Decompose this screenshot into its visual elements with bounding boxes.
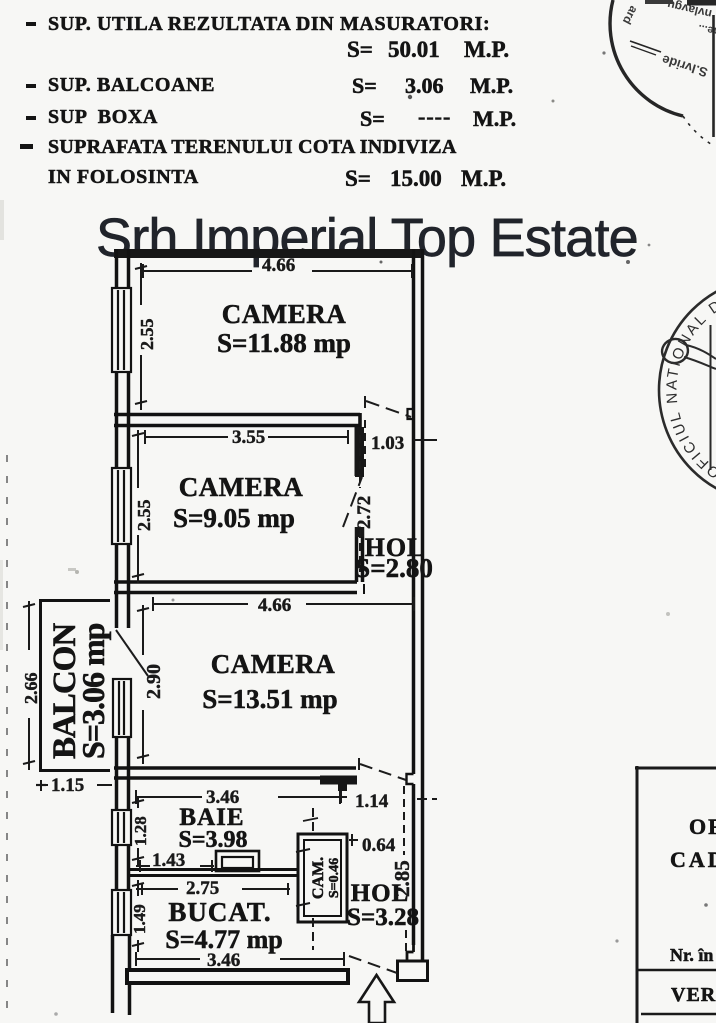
- svg-text:S=3.06 mp: S=3.06 mp: [75, 623, 111, 759]
- svg-text:M.P.: M.P.: [470, 73, 513, 98]
- svg-text:SUP. UTILA REZULTATA DIN MASUR: SUP. UTILA REZULTATA DIN MASURATORI:: [48, 13, 490, 35]
- svg-text:SUP BOXA: SUP BOXA: [48, 106, 158, 128]
- svg-text:SUP. BALCOANE: SUP. BALCOANE: [48, 74, 215, 96]
- svg-text:S=11.88 mp: S=11.88 mp: [217, 328, 351, 358]
- svg-text:S=: S=: [345, 166, 371, 191]
- svg-text:2.90: 2.90: [143, 664, 165, 699]
- svg-text:CAMERA: CAMERA: [211, 649, 336, 679]
- svg-text:S=0.46: S=0.46: [327, 858, 342, 898]
- svg-text:OF: OF: [689, 814, 716, 839]
- svg-text:2.55: 2.55: [134, 500, 154, 532]
- svg-text:S=9.05 mp: S=9.05 mp: [173, 503, 295, 533]
- svg-text:S=: S=: [360, 106, 385, 131]
- svg-text:CAM.: CAM.: [310, 857, 327, 899]
- svg-text:S=3.98: S=3.98: [178, 827, 247, 853]
- svg-text:2.72: 2.72: [354, 496, 375, 529]
- svg-text:S=: S=: [347, 37, 373, 62]
- svg-text:M.P.: M.P.: [464, 37, 509, 62]
- svg-text:CAD: CAD: [670, 847, 716, 872]
- svg-text:S=4.77 mp: S=4.77 mp: [165, 925, 282, 954]
- svg-text:50.01: 50.01: [388, 37, 440, 62]
- svg-text:4.66: 4.66: [262, 255, 295, 276]
- svg-text:S=13.51 mp: S=13.51 mp: [202, 684, 337, 714]
- svg-text:BUCAT.: BUCAT.: [168, 897, 271, 927]
- svg-text:CAMERA: CAMERA: [179, 472, 304, 502]
- svg-text:1.14: 1.14: [355, 791, 389, 812]
- svg-text:1.28: 1.28: [131, 816, 150, 846]
- svg-text:1.03: 1.03: [371, 433, 404, 454]
- svg-text:2.55: 2.55: [137, 319, 157, 351]
- svg-text:----: ----: [418, 104, 451, 129]
- svg-text:15.00: 15.00: [390, 166, 442, 191]
- svg-text:SUPRAFATA TERENULUI COTA INDIV: SUPRAFATA TERENULUI COTA INDIVIZA: [48, 136, 457, 158]
- svg-text:S=3.28: S=3.28: [347, 904, 419, 931]
- svg-text:VER: VER: [671, 984, 716, 1006]
- svg-text:2.66: 2.66: [21, 673, 41, 705]
- svg-text:Srh Imperial Top Estate: Srh Imperial Top Estate: [96, 208, 638, 268]
- svg-text:3.55: 3.55: [232, 427, 265, 448]
- svg-text:S=: S=: [352, 73, 377, 98]
- svg-text:HOL: HOL: [351, 880, 410, 907]
- svg-text:Nr. în: Nr. în: [670, 945, 713, 965]
- svg-text:CAMERA: CAMERA: [222, 299, 347, 329]
- svg-text:IN FOLOSINTA: IN FOLOSINTA: [48, 166, 199, 188]
- svg-text:1.15: 1.15: [51, 775, 84, 796]
- svg-text:M.P.: M.P.: [461, 166, 506, 191]
- svg-text:4.66: 4.66: [258, 595, 291, 616]
- svg-text:1.43: 1.43: [152, 850, 185, 871]
- svg-text:2.75: 2.75: [186, 878, 219, 899]
- svg-text:3.06: 3.06: [405, 73, 444, 98]
- svg-text:0.64: 0.64: [362, 835, 396, 856]
- svg-text:M.P.: M.P.: [473, 106, 516, 131]
- svg-text:1.49: 1.49: [130, 904, 149, 934]
- svg-text:S=2.80: S=2.80: [355, 553, 433, 583]
